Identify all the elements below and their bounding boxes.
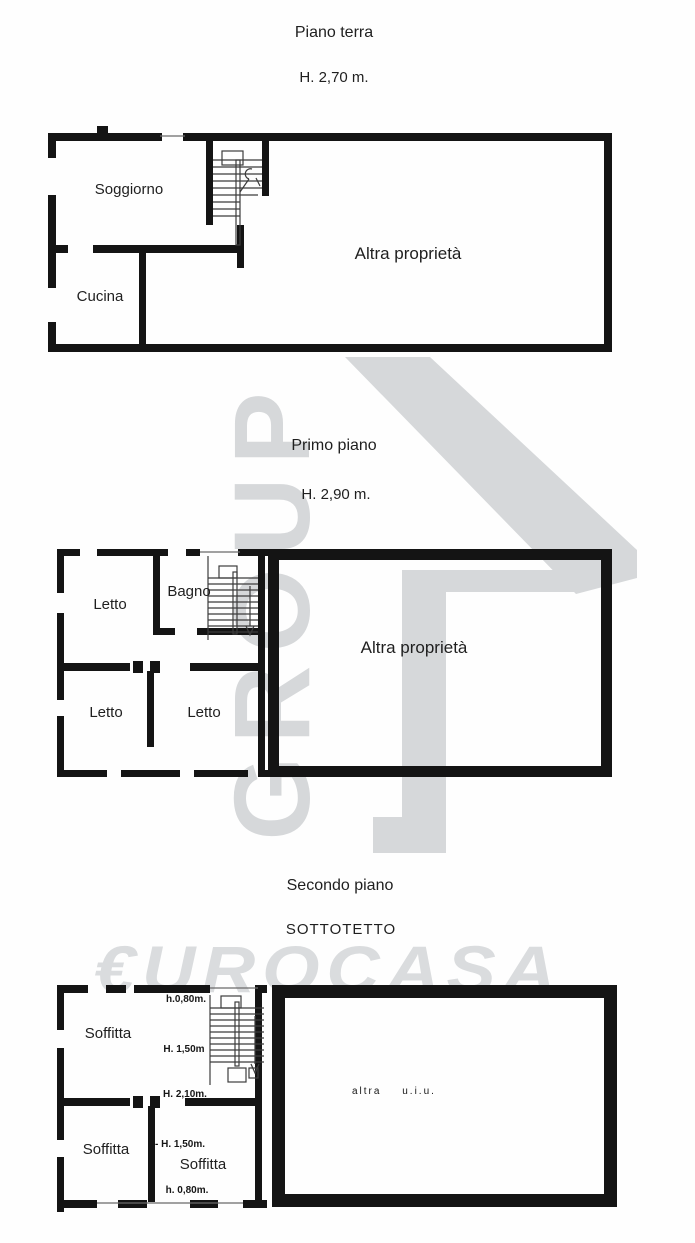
ceiling-height-piano-terra: H. 2,70 m. [299,69,368,86]
height-label-h150-upper: H. 1,50m [163,1044,204,1055]
room-label-altra-proprieta-primo: Altra proprietà [361,638,468,658]
room-label-cucina: Cucina [77,288,124,305]
room-label-soffitta-s: Soffitta [180,1156,226,1173]
room-label-altra-proprieta-terra: Altra proprietà [355,244,462,264]
room-label-letto-s: Letto [187,704,220,721]
floor-title-piano-terra: Piano terra [295,24,373,42]
floor-plan-document: GROUP €UROCASA [0,0,695,1243]
room-label-altra-uiu: altra u.i.u. [352,1086,436,1097]
labels-layer: Piano terra H. 2,70 m. Soggiorno Cucina … [0,0,695,1243]
room-label-soffitta-nw: Soffitta [85,1025,131,1042]
floor-title-secondo-piano: Secondo piano [287,877,394,895]
room-label-bagno: Bagno [167,583,210,600]
floor-subtitle-sottotetto: SOTTOTETTO [286,921,396,938]
height-label-h080-top: h.0,80m. [166,994,206,1005]
room-label-soggiorno: Soggiorno [95,181,163,198]
height-label-h210: H. 2,10m. [163,1089,207,1100]
room-label-letto-nw: Letto [93,596,126,613]
ceiling-height-primo-piano: H. 2,90 m. [301,486,370,503]
floor-title-primo-piano: Primo piano [291,437,376,455]
height-label-h080-bottom: h. 0,80m. [166,1185,209,1196]
room-label-letto-sw: Letto [89,704,122,721]
height-label-h150-lower: - H. 1,50m. [155,1139,205,1150]
room-label-soffitta-sw: Soffitta [83,1141,129,1158]
